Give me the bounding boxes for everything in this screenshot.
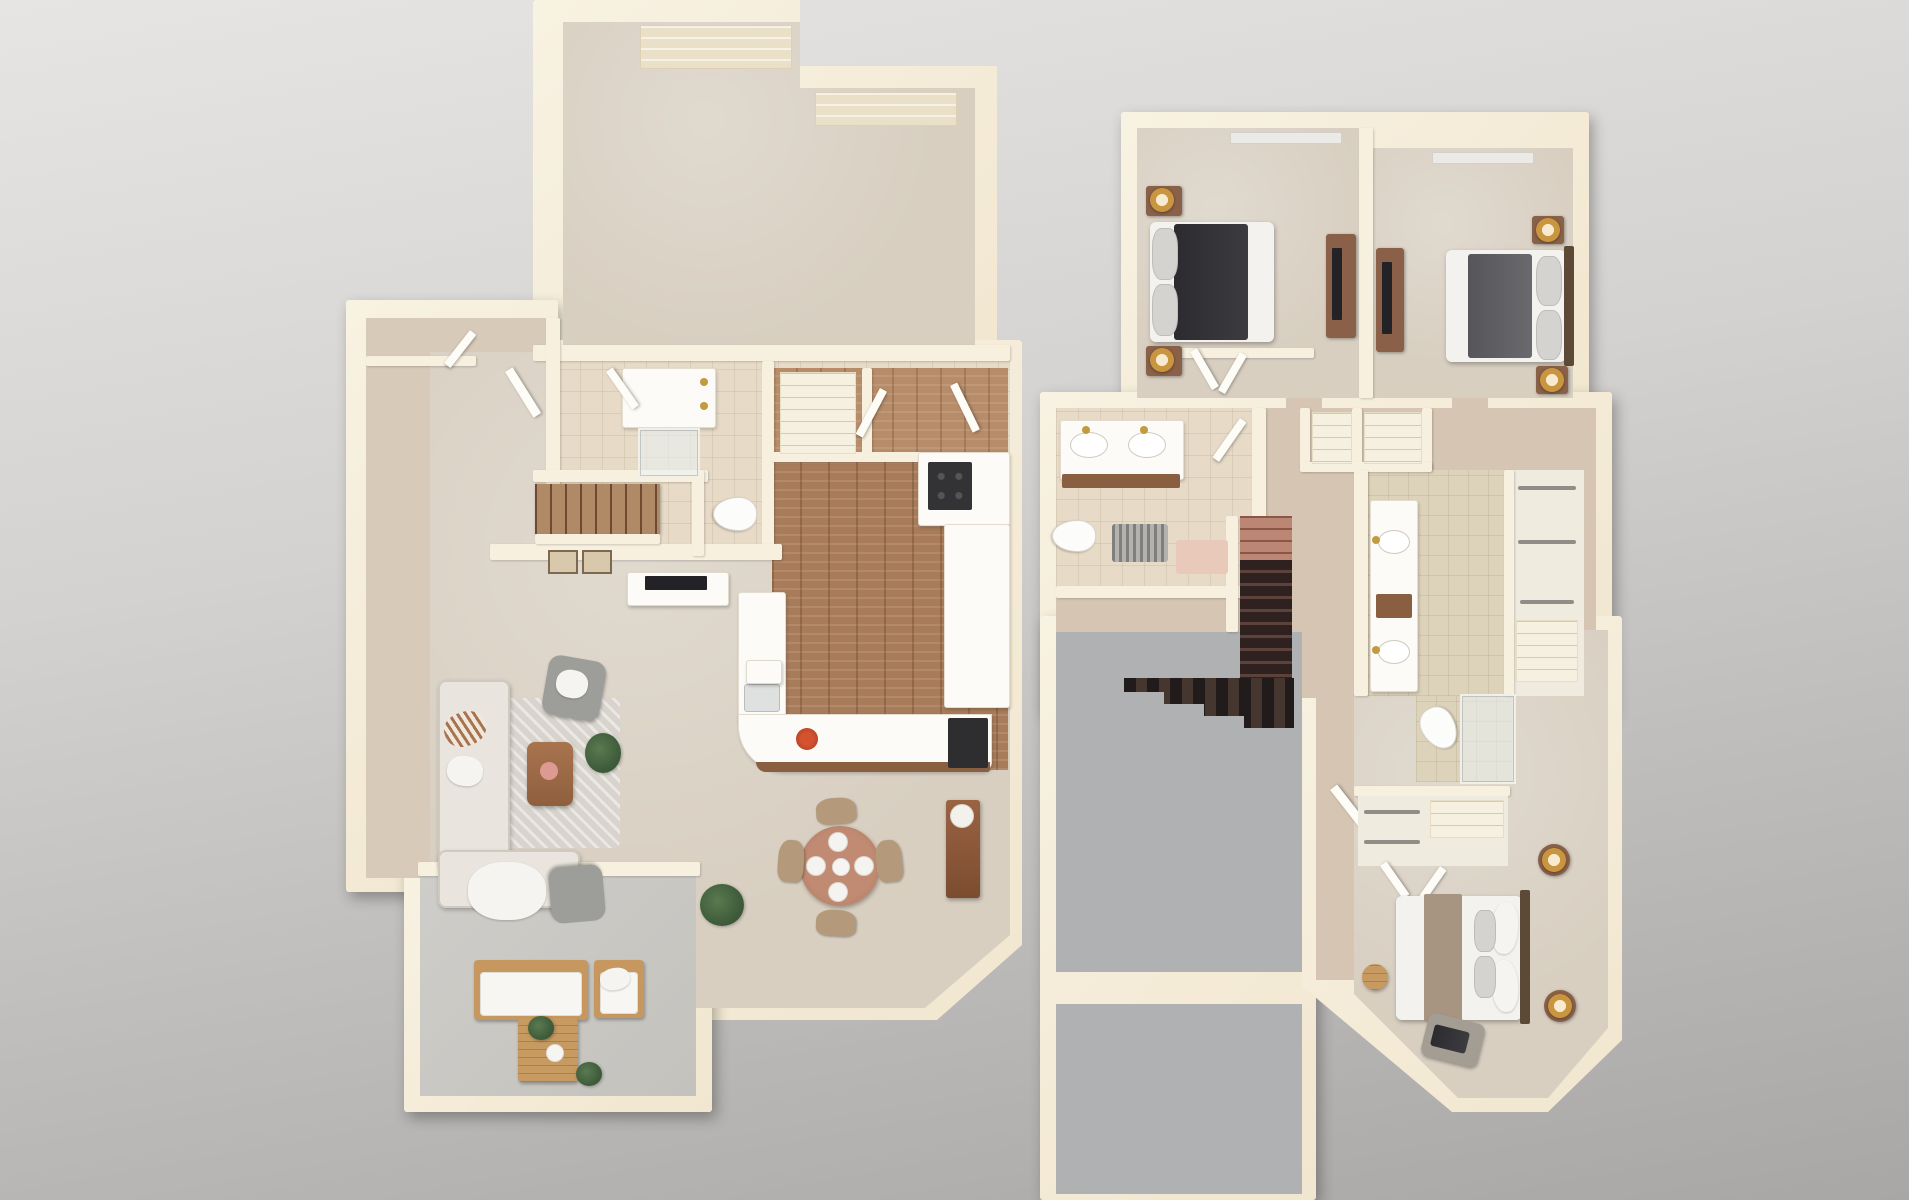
tv bbox=[645, 576, 707, 590]
floor-plant bbox=[585, 733, 621, 773]
void-open-below-2 bbox=[1056, 1004, 1302, 1194]
patio-sofa-cushion bbox=[480, 972, 582, 1016]
bath1-shower bbox=[638, 428, 700, 478]
bath2-sink-1 bbox=[1070, 432, 1108, 458]
cooktop bbox=[928, 462, 972, 510]
bath3-shower bbox=[1460, 694, 1516, 784]
bedB-lamp-1 bbox=[1536, 218, 1560, 242]
wall-stairs2-left bbox=[1226, 516, 1238, 632]
dining-centerpiece bbox=[832, 858, 850, 876]
master-pillow-3 bbox=[1474, 910, 1496, 952]
stairs-first-floor bbox=[535, 484, 660, 534]
walkin-rod-1 bbox=[1518, 486, 1576, 490]
wall-bedroom-divider bbox=[1359, 128, 1373, 398]
bath1-vanity bbox=[622, 368, 716, 428]
stairs2-upper bbox=[1240, 516, 1292, 560]
dining-plate-3 bbox=[806, 856, 826, 876]
dining-plate-4 bbox=[854, 856, 874, 876]
bath1-faucet-2 bbox=[700, 402, 708, 410]
master-closet-rod-1 bbox=[1364, 810, 1420, 814]
patio-plant-2 bbox=[576, 1062, 602, 1086]
floorplan-image bbox=[0, 0, 1909, 1200]
master-bed-runner bbox=[1424, 894, 1462, 1022]
linen-closet-2 bbox=[1364, 412, 1422, 464]
bath3-faucet-2 bbox=[1372, 646, 1380, 654]
wall-garage-bottom bbox=[533, 345, 1010, 361]
dining-chair-3 bbox=[777, 839, 806, 883]
bedA-pillow-1 bbox=[1152, 228, 1178, 280]
bedroomB-tv bbox=[1382, 262, 1392, 334]
bath2-sink-2 bbox=[1128, 432, 1166, 458]
bath2-vanity-base bbox=[1062, 474, 1180, 488]
master-closet-rod-2 bbox=[1364, 840, 1420, 844]
bath3-sink-2 bbox=[1378, 640, 1410, 664]
bath2-tub bbox=[1112, 524, 1168, 562]
kitchen-sink bbox=[744, 684, 780, 712]
windowB-sill bbox=[1432, 152, 1534, 164]
patio-decor bbox=[546, 1044, 564, 1062]
wall-art-1 bbox=[548, 550, 578, 574]
master-closet-shelf bbox=[1430, 800, 1504, 838]
wall-closet-mid-3 bbox=[1422, 408, 1432, 470]
bedA-lamp-2 bbox=[1150, 348, 1174, 372]
bedB-headboard bbox=[1564, 246, 1574, 366]
cabinet-lamp bbox=[950, 804, 974, 828]
bath2-mat bbox=[1176, 540, 1228, 574]
wall-entry-closet bbox=[366, 356, 476, 366]
bedB-pillow-1 bbox=[1536, 256, 1562, 306]
wall-closet-mid-1 bbox=[1300, 408, 1310, 470]
dining-plate-2 bbox=[828, 882, 848, 902]
walkin-rod-2 bbox=[1518, 540, 1576, 544]
bath3-sink-1 bbox=[1378, 530, 1410, 554]
walkin-rod-3 bbox=[1520, 600, 1574, 604]
dining-plate-1 bbox=[828, 832, 848, 852]
wall-master-closet-top bbox=[1354, 786, 1510, 796]
wall-hall-bath3 bbox=[1354, 470, 1368, 696]
bedB-lamp-2 bbox=[1540, 368, 1564, 392]
sofa-blanket bbox=[468, 862, 546, 920]
bedroomA-tv bbox=[1332, 248, 1342, 320]
armchair-2 bbox=[548, 864, 607, 924]
dining-chair-2 bbox=[815, 909, 856, 937]
bath2-faucet-2 bbox=[1140, 426, 1148, 434]
bath3-faucet-1 bbox=[1372, 536, 1380, 544]
dining-chair-1 bbox=[815, 797, 857, 826]
wall-closet-mid-2 bbox=[1352, 408, 1362, 470]
wall-bath3-closet bbox=[1504, 470, 1514, 696]
wall-art-2 bbox=[582, 550, 612, 574]
wall-toilet-left bbox=[692, 470, 704, 556]
counter-shelf bbox=[746, 660, 782, 684]
stairs-stringer-wall bbox=[535, 534, 660, 544]
bedB-blanket bbox=[1468, 254, 1532, 358]
bath2-faucet-1 bbox=[1082, 426, 1090, 434]
master-lamp-1 bbox=[1542, 848, 1566, 872]
bath1-faucet-1 bbox=[700, 378, 708, 386]
bath1-toilet bbox=[713, 497, 757, 531]
pantry-shelves bbox=[780, 372, 856, 454]
garage-door-panel bbox=[640, 25, 792, 69]
master-lamp-2 bbox=[1548, 994, 1572, 1018]
bedA-lamp-1 bbox=[1150, 188, 1174, 212]
walkin-shelf bbox=[1516, 620, 1578, 682]
garage-window-panel bbox=[815, 92, 957, 126]
bath2-toilet bbox=[1052, 520, 1096, 552]
linen-closet-1 bbox=[1312, 412, 1352, 464]
island-appliance bbox=[948, 718, 988, 768]
master-headboard bbox=[1520, 890, 1530, 1024]
windowA-sill bbox=[1230, 132, 1342, 144]
coffee-table-decor bbox=[540, 762, 558, 780]
patio-plant-1 bbox=[528, 1016, 554, 1040]
master-pillow-4 bbox=[1474, 956, 1496, 998]
bedA-blanket bbox=[1174, 224, 1248, 340]
bedB-pillow-2 bbox=[1536, 310, 1562, 360]
wall-mid-bottom bbox=[490, 544, 782, 560]
doorway-B bbox=[1452, 398, 1488, 410]
counter-right-strip bbox=[944, 524, 1010, 708]
bath3-drawer bbox=[1376, 594, 1412, 618]
fruit-bowl bbox=[796, 728, 818, 750]
master-side-table bbox=[1362, 964, 1388, 990]
wall-bath2-bottom bbox=[1056, 586, 1254, 598]
bedA-pillow-2 bbox=[1152, 284, 1178, 336]
patio-tall-plant bbox=[700, 884, 744, 926]
